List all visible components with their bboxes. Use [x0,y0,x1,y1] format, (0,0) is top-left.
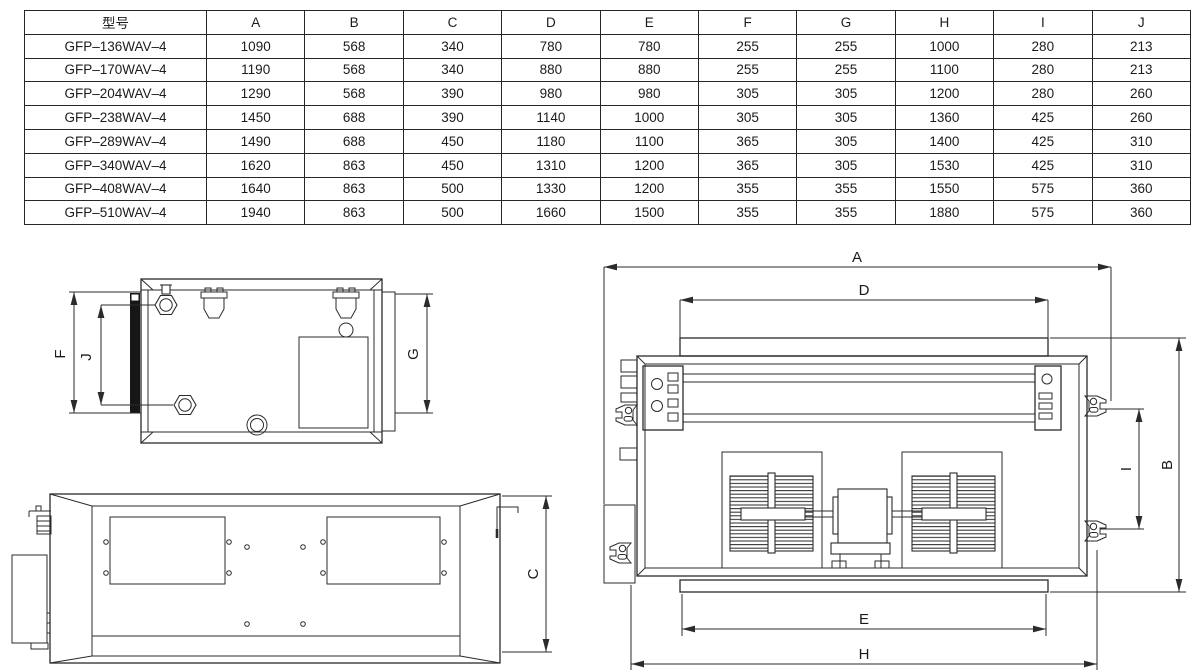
hanger-bracket [333,288,359,318]
table-row: GFP–170WAV–41190568340880880255255110028… [25,58,1191,82]
dim-label-g: G [405,348,422,360]
value-cell: 360 [1092,177,1190,201]
value-cell: 780 [600,34,698,58]
value-cell: 1180 [502,129,600,153]
column-header: C [403,11,501,35]
value-cell: 360 [1092,201,1190,225]
value-cell: 863 [305,177,403,201]
top-view-drawing: A D [595,252,1200,671]
column-header: F [698,11,796,35]
dimension-spec-table: 型号ABCDEFGHIJ GFP–136WAV–4109056834078078… [24,10,1191,225]
fan-motor [831,489,892,568]
value-cell: 1550 [895,177,993,201]
table-row: GFP–204WAV–41290568390980980305305120028… [25,82,1191,106]
unit-body-outline [50,494,500,663]
value-cell: 863 [305,201,403,225]
hanger-bracket [1085,521,1106,541]
value-cell: 425 [994,129,1092,153]
column-header: A [207,11,305,35]
value-cell: 1310 [502,153,600,177]
table-row: GFP–340WAV–41620863450131012003653051530… [25,153,1191,177]
spec-table: 型号ABCDEFGHIJ GFP–136WAV–4109056834078078… [24,10,1191,225]
value-cell: 390 [403,82,501,106]
value-cell: 1200 [600,177,698,201]
dim-E: E [682,594,1046,636]
value-cell: 568 [305,82,403,106]
value-cell: 213 [1092,58,1190,82]
value-cell: 500 [403,201,501,225]
value-cell: 1620 [207,153,305,177]
value-cell: 1140 [502,106,600,130]
dim-label-c: C [525,568,542,579]
dim-G: G [395,294,433,413]
value-cell: 450 [403,129,501,153]
spec-table-header-row: 型号ABCDEFGHIJ [25,11,1191,35]
model-cell: GFP–289WAV–4 [25,129,207,153]
pipe-connection-top [155,285,177,315]
column-header: 型号 [25,11,207,35]
dim-B: B [1050,338,1186,592]
model-cell: GFP–170WAV–4 [25,58,207,82]
value-cell: 1090 [207,34,305,58]
pipe-connection-bottom [174,396,196,415]
value-cell: 1530 [895,153,993,177]
value-cell: 305 [698,82,796,106]
value-cell: 260 [1092,106,1190,130]
value-cell: 355 [698,177,796,201]
value-cell: 980 [502,82,600,106]
model-cell: GFP–510WAV–4 [25,201,207,225]
model-cell: GFP–408WAV–4 [25,177,207,201]
value-cell: 425 [994,153,1092,177]
model-cell: GFP–204WAV–4 [25,82,207,106]
value-cell: 575 [994,201,1092,225]
hanger-bracket [616,405,637,425]
column-header: G [797,11,895,35]
value-cell: 880 [600,58,698,82]
value-cell: 1400 [895,129,993,153]
bottom-duct-flange [680,580,1048,592]
value-cell: 260 [1092,82,1190,106]
value-cell: 310 [1092,129,1190,153]
value-cell: 1450 [207,106,305,130]
spec-table-body: GFP–136WAV–41090568340780780255255100028… [25,34,1191,224]
electric-control-box [299,337,368,428]
table-row: GFP–408WAV–41640863500133012003553551550… [25,177,1191,201]
dim-D: D [680,282,1048,338]
value-cell: 365 [698,153,796,177]
drain-outlet [247,415,267,435]
value-cell: 575 [994,177,1092,201]
value-cell: 1490 [207,129,305,153]
front-view-drawing: C [5,480,563,670]
dim-I: I [1100,409,1144,529]
value-cell: 310 [1092,153,1190,177]
dim-label-j: J [78,353,95,361]
value-cell: 390 [403,106,501,130]
value-cell: 688 [305,106,403,130]
value-cell: 1330 [502,177,600,201]
value-cell: 1200 [600,153,698,177]
column-header: J [1092,11,1190,35]
knockout-hole [339,323,353,337]
model-cell: GFP–340WAV–4 [25,153,207,177]
column-header: D [502,11,600,35]
value-cell: 880 [502,58,600,82]
dim-C: C [502,496,552,652]
value-cell: 1190 [207,58,305,82]
value-cell: 340 [403,34,501,58]
value-cell: 255 [698,34,796,58]
model-cell: GFP–136WAV–4 [25,34,207,58]
value-cell: 568 [305,58,403,82]
side-view-drawing: F J G [55,265,475,470]
value-cell: 1000 [895,34,993,58]
hanger-bracket [201,288,227,318]
dim-J: J [78,305,173,405]
value-cell: 305 [797,153,895,177]
value-cell: 1940 [207,201,305,225]
value-cell: 355 [797,201,895,225]
dim-label-e: E [859,611,869,628]
dim-label-f: F [55,349,69,358]
value-cell: 255 [797,58,895,82]
table-row: GFP–510WAV–41940863500166015003553551880… [25,201,1191,225]
value-cell: 355 [698,201,796,225]
access-panel-right [327,517,440,584]
value-cell: 863 [305,153,403,177]
pipe-stubs [620,360,637,460]
electric-box-side [12,555,50,649]
value-cell: 280 [994,58,1092,82]
catalog-dimension-page: 型号ABCDEFGHIJ GFP–136WAV–4109056834078078… [0,0,1200,671]
hanger-bracket [29,506,51,534]
column-header: H [895,11,993,35]
value-cell: 280 [994,34,1092,58]
return-flange-bar [130,293,140,413]
value-cell: 425 [994,106,1092,130]
panel-screws [104,540,447,627]
value-cell: 500 [403,177,501,201]
table-row: GFP–289WAV–41490688450118011003653051400… [25,129,1191,153]
value-cell: 305 [797,106,895,130]
top-duct-flange [680,338,1048,356]
table-row: GFP–136WAV–41090568340780780255255100028… [25,34,1191,58]
column-header: B [305,11,403,35]
dim-label-h: H [859,646,870,663]
heat-exchanger-coil [643,366,1061,430]
value-cell: 1100 [895,58,993,82]
model-cell: GFP–238WAV–4 [25,106,207,130]
value-cell: 568 [305,34,403,58]
value-cell: 1880 [895,201,993,225]
value-cell: 280 [994,82,1092,106]
value-cell: 1290 [207,82,305,106]
value-cell: 1200 [895,82,993,106]
value-cell: 1360 [895,106,993,130]
value-cell: 213 [1092,34,1190,58]
dim-F: F [55,292,141,413]
value-cell: 450 [403,153,501,177]
value-cell: 305 [698,106,796,130]
value-cell: 365 [698,129,796,153]
value-cell: 355 [797,177,895,201]
value-cell: 980 [600,82,698,106]
dim-label-a: A [852,252,862,266]
value-cell: 688 [305,129,403,153]
value-cell: 1500 [600,201,698,225]
access-panel-left [110,517,225,584]
column-header: E [600,11,698,35]
table-row: GFP–238WAV–41450688390114010003053051360… [25,106,1191,130]
value-cell: 305 [797,82,895,106]
dim-label-i: I [1118,467,1135,471]
supply-duct-flange [382,292,395,431]
unit-body-outline [141,279,382,443]
column-header: I [994,11,1092,35]
hanger-bracket [1085,396,1106,416]
dim-label-b: B [1159,460,1176,470]
value-cell: 1100 [600,129,698,153]
value-cell: 780 [502,34,600,58]
value-cell: 305 [797,129,895,153]
value-cell: 340 [403,58,501,82]
hanger-bracket [610,543,631,563]
value-cell: 1000 [600,106,698,130]
value-cell: 1640 [207,177,305,201]
value-cell: 255 [698,58,796,82]
value-cell: 1660 [502,201,600,225]
dim-label-d: D [859,282,870,299]
value-cell: 255 [797,34,895,58]
